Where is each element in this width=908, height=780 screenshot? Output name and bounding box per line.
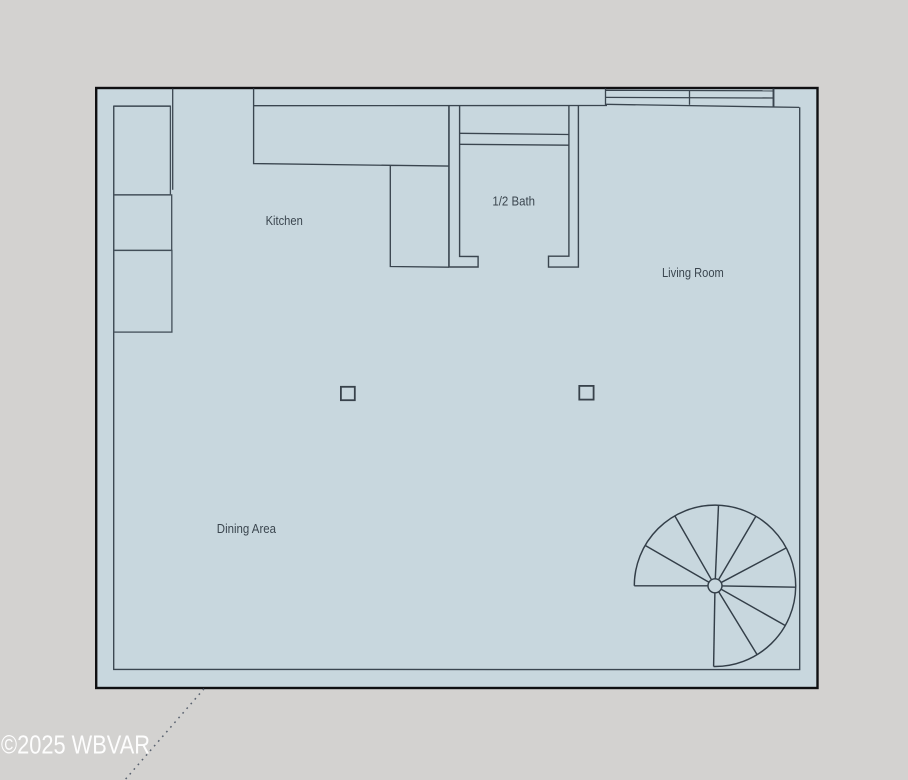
svg-text:Living Room: Living Room <box>662 265 724 280</box>
svg-text:Kitchen: Kitchen <box>266 213 303 228</box>
svg-text:©2025 WBVAR: ©2025 WBVAR <box>1 730 150 760</box>
svg-text:1/2 Bath: 1/2 Bath <box>492 194 535 209</box>
svg-text:Dining Area: Dining Area <box>217 521 277 536</box>
